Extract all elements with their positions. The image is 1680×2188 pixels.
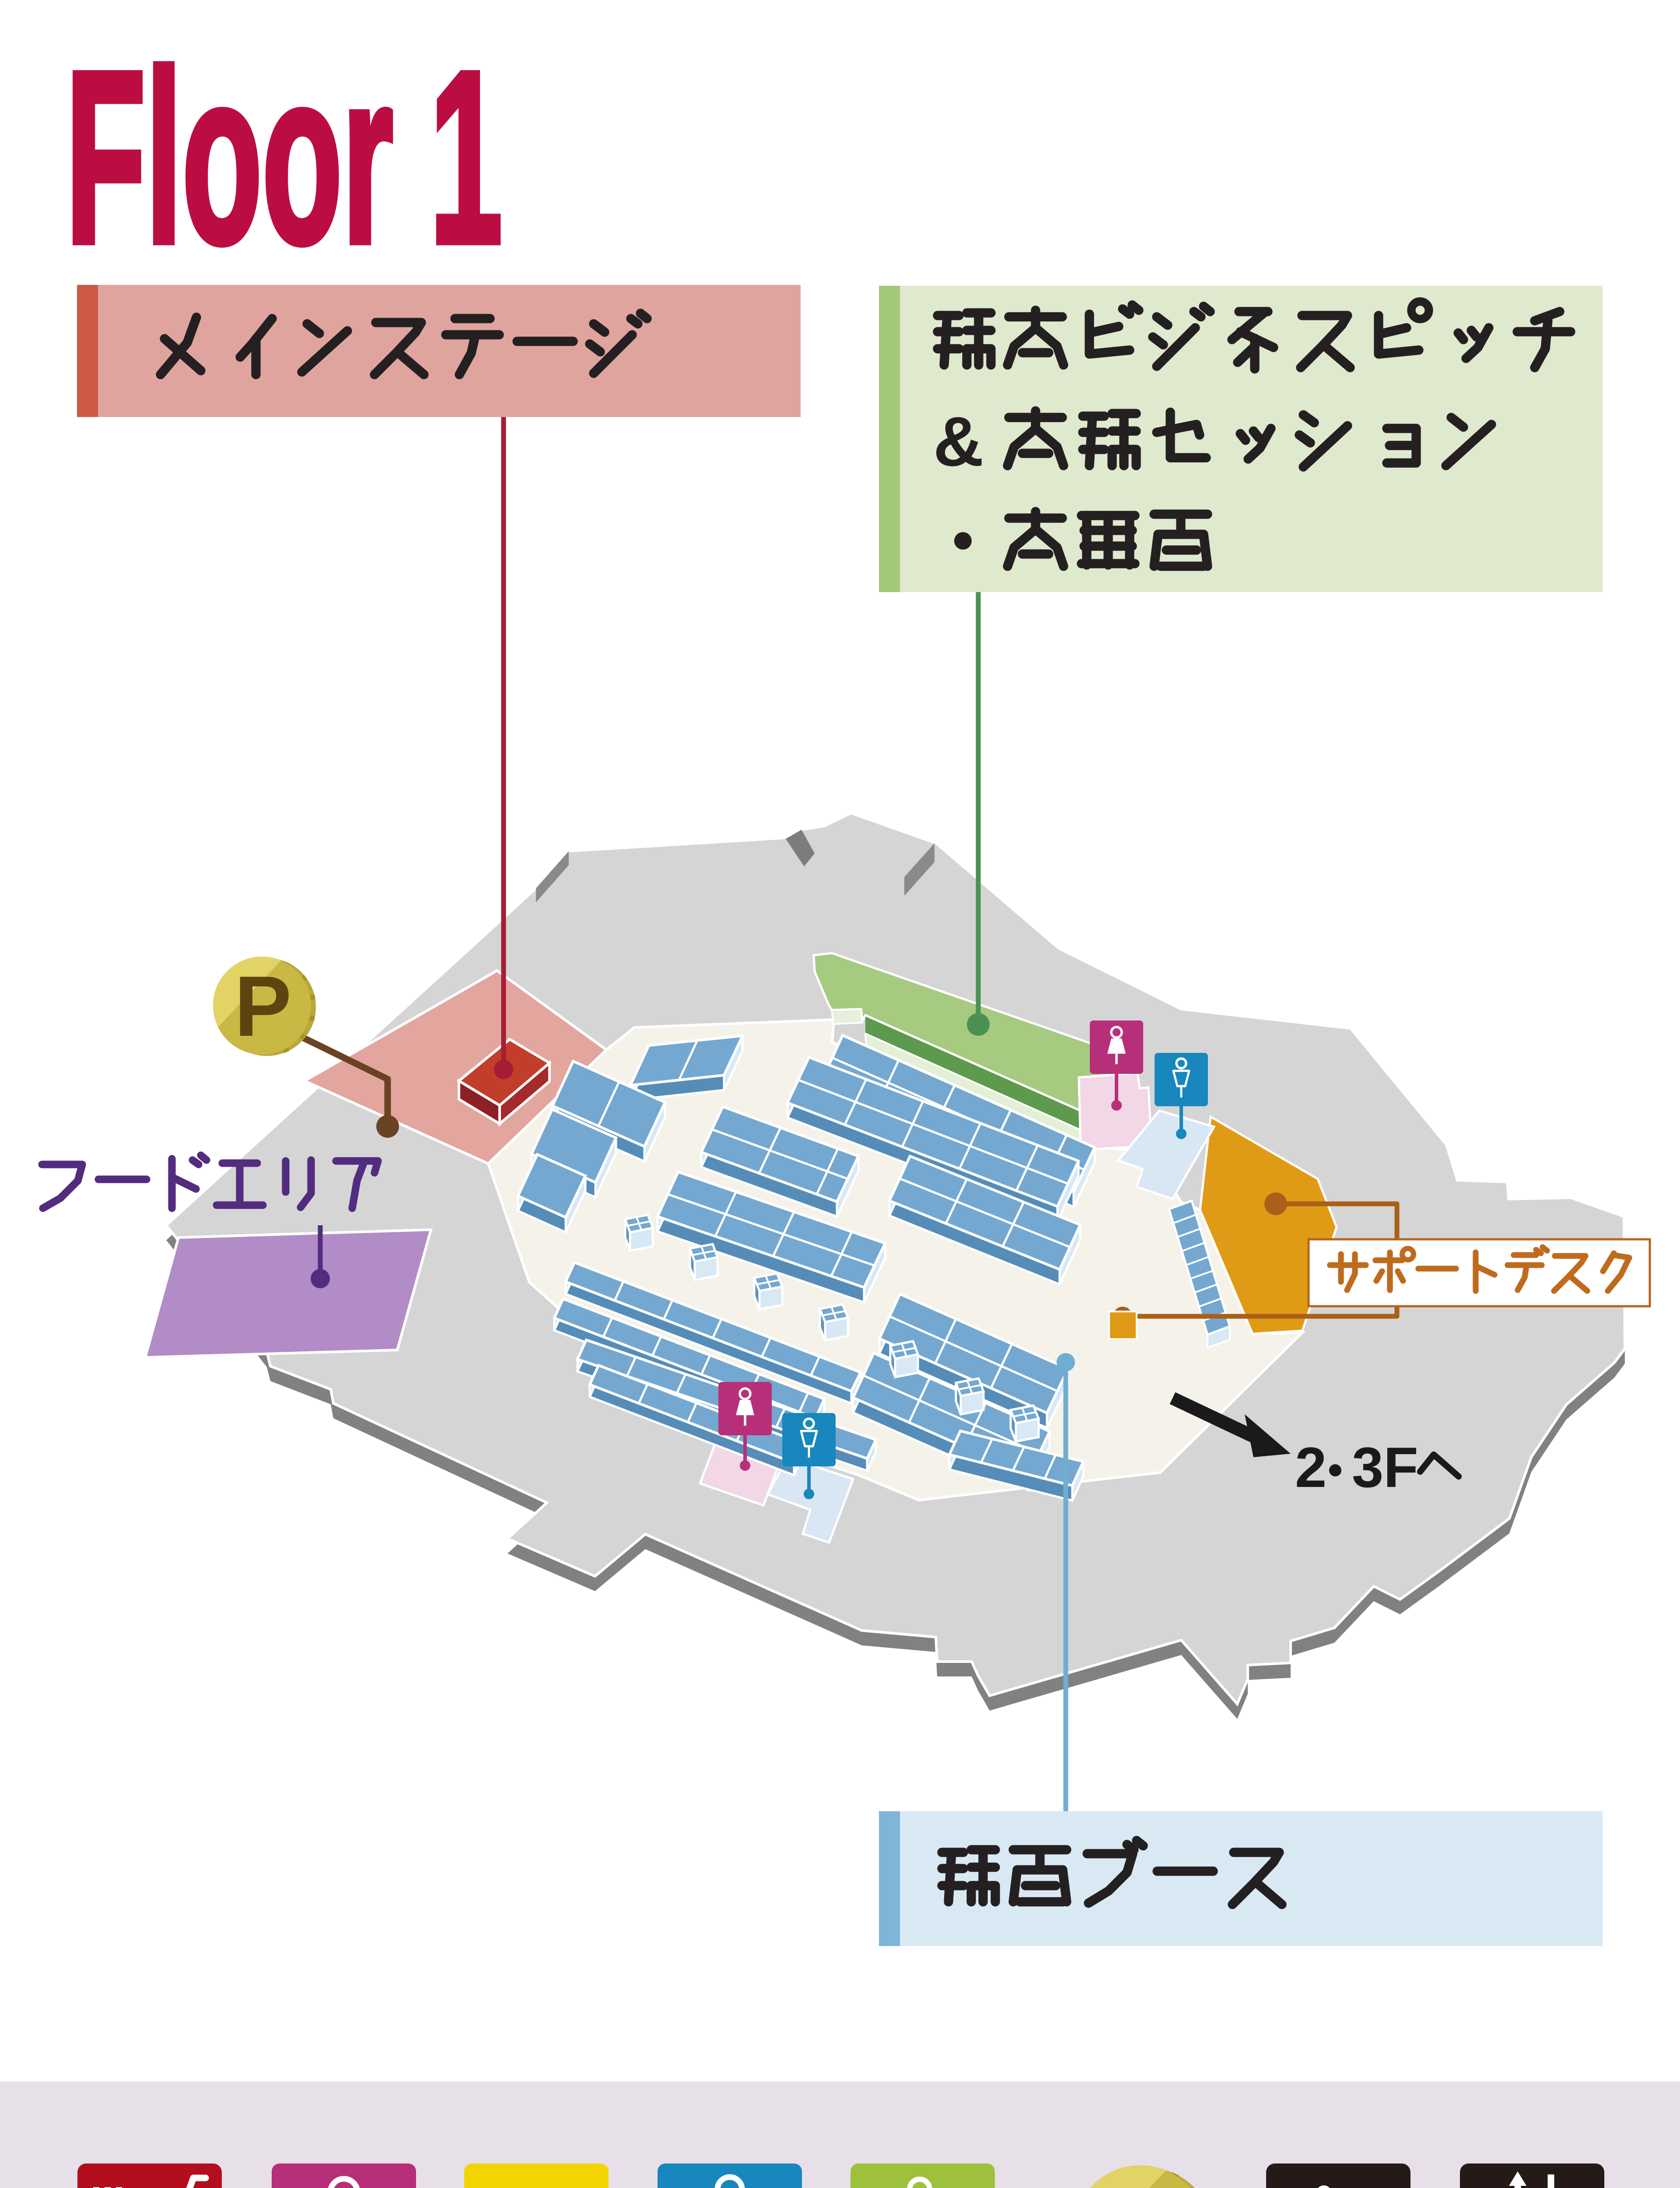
svg-text:P: P bbox=[1102, 2168, 1180, 2188]
svg-text:P: P bbox=[234, 958, 292, 1054]
svg-text:3F: 3F bbox=[1352, 1435, 1418, 1499]
svg-text:Floor 1: Floor 1 bbox=[66, 21, 503, 295]
svg-text:2: 2 bbox=[1295, 1435, 1326, 1499]
svg-text:&: & bbox=[933, 402, 984, 480]
